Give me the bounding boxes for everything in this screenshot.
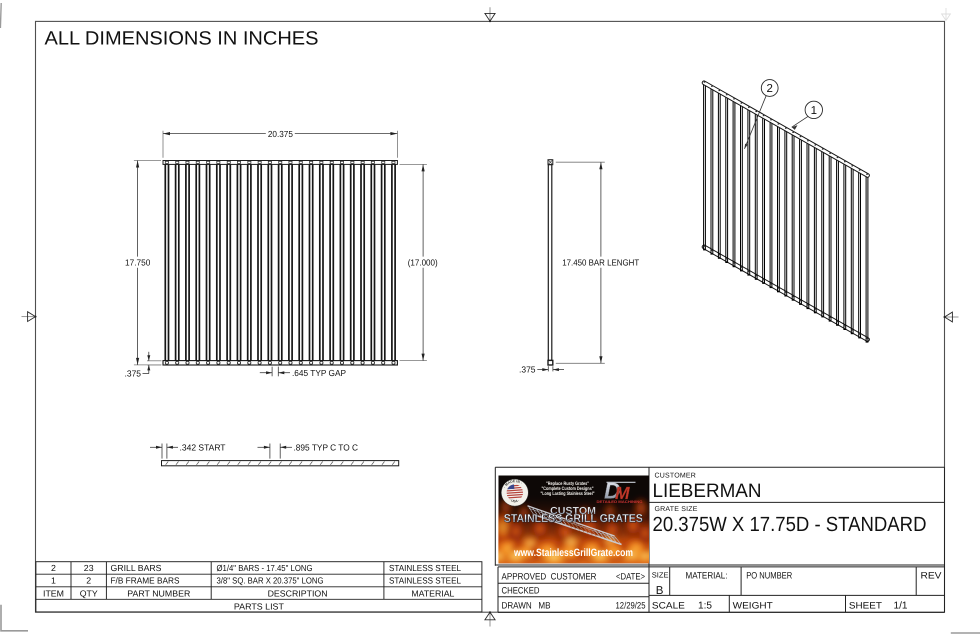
svg-text:1/1: 1/1 [894,601,908,612]
svg-text:2: 2 [766,83,772,95]
svg-text:20.375W X 17.75D - STANDARD: 20.375W X 17.75D - STANDARD [653,513,927,536]
svg-text:GRATE SIZE: GRATE SIZE [655,506,698,513]
svg-text:.375: .375 [125,369,142,379]
svg-text:.645 TYP GAP: .645 TYP GAP [292,368,346,378]
svg-text:QTY: QTY [80,589,98,599]
svg-text:SCALE: SCALE [652,601,685,611]
svg-text:2: 2 [86,576,91,586]
svg-text:20.375: 20.375 [268,129,293,139]
svg-text:F/B FRAME BARS: F/B FRAME BARS [111,576,180,586]
svg-text:MATERIAL:: MATERIAL: [686,571,728,581]
svg-text:17.450 BAR LENGHT: 17.450 BAR LENGHT [562,258,640,268]
svg-text:Ø1/4" BARS - 17.45" LONG: Ø1/4" BARS - 17.45" LONG [217,563,313,573]
svg-text:STAINLESS STEEL: STAINLESS STEEL [389,563,461,573]
svg-text:ALL DIMENSIONS IN INCHES: ALL DIMENSIONS IN INCHES [45,28,319,49]
svg-text:<DATE>: <DATE> [616,572,645,582]
svg-text:PO NUMBER: PO NUMBER [746,571,792,581]
svg-text:B: B [656,585,664,597]
svg-text:SHEET: SHEET [849,601,882,611]
svg-text:1:5: 1:5 [698,601,712,612]
svg-text:(17.000): (17.000) [408,258,438,268]
svg-text:1: 1 [811,105,817,117]
svg-text:"Long Lasting Stainless Steel": "Long Lasting Stainless Steel" [541,491,595,497]
svg-text:DETAILED MACHINING: DETAILED MACHINING [597,500,643,504]
svg-text:3/8" SQ. BAR X 20.375" LONG: 3/8" SQ. BAR X 20.375" LONG [217,576,324,586]
svg-text:17.750: 17.750 [125,258,150,268]
svg-text:DRAWN MB: DRAWN MB [502,600,551,610]
svg-text:12/29/25: 12/29/25 [616,600,646,610]
svg-text:MATERIAL: MATERIAL [411,589,454,599]
svg-text:WEIGHT: WEIGHT [733,601,773,611]
svg-text:LIEBERMAN: LIEBERMAN [653,480,762,502]
svg-text:STAINLESS STEEL: STAINLESS STEEL [389,576,461,586]
svg-text:CHECKED: CHECKED [502,586,540,596]
svg-text:SIZE: SIZE [652,571,669,580]
svg-text:2: 2 [51,563,56,573]
svg-text:REV: REV [921,571,943,581]
svg-text:1: 1 [51,576,56,586]
svg-text:ITEM: ITEM [43,589,64,599]
svg-text:.342 START: .342 START [180,443,227,453]
svg-text:PART NUMBER: PART NUMBER [127,589,190,599]
svg-text:www.StainlessGrillGrate.com: www.StainlessGrillGrate.com [513,547,633,559]
svg-text:APPROVED CUSTOMER: APPROVED CUSTOMER [502,572,597,582]
svg-text:.375: .375 [519,364,536,374]
svg-text:DESCRIPTION: DESCRIPTION [268,589,328,599]
svg-text:CUSTOMER: CUSTOMER [655,472,697,479]
svg-text:GRILL BARS: GRILL BARS [111,563,162,573]
svg-text:STAINLESS GRILL GRATES: STAINLESS GRILL GRATES [504,513,643,525]
svg-text:PARTS LIST: PARTS LIST [234,601,285,611]
svg-text:23: 23 [84,563,94,573]
svg-text:.895 TYP C TO C: .895 TYP C TO C [294,443,359,453]
